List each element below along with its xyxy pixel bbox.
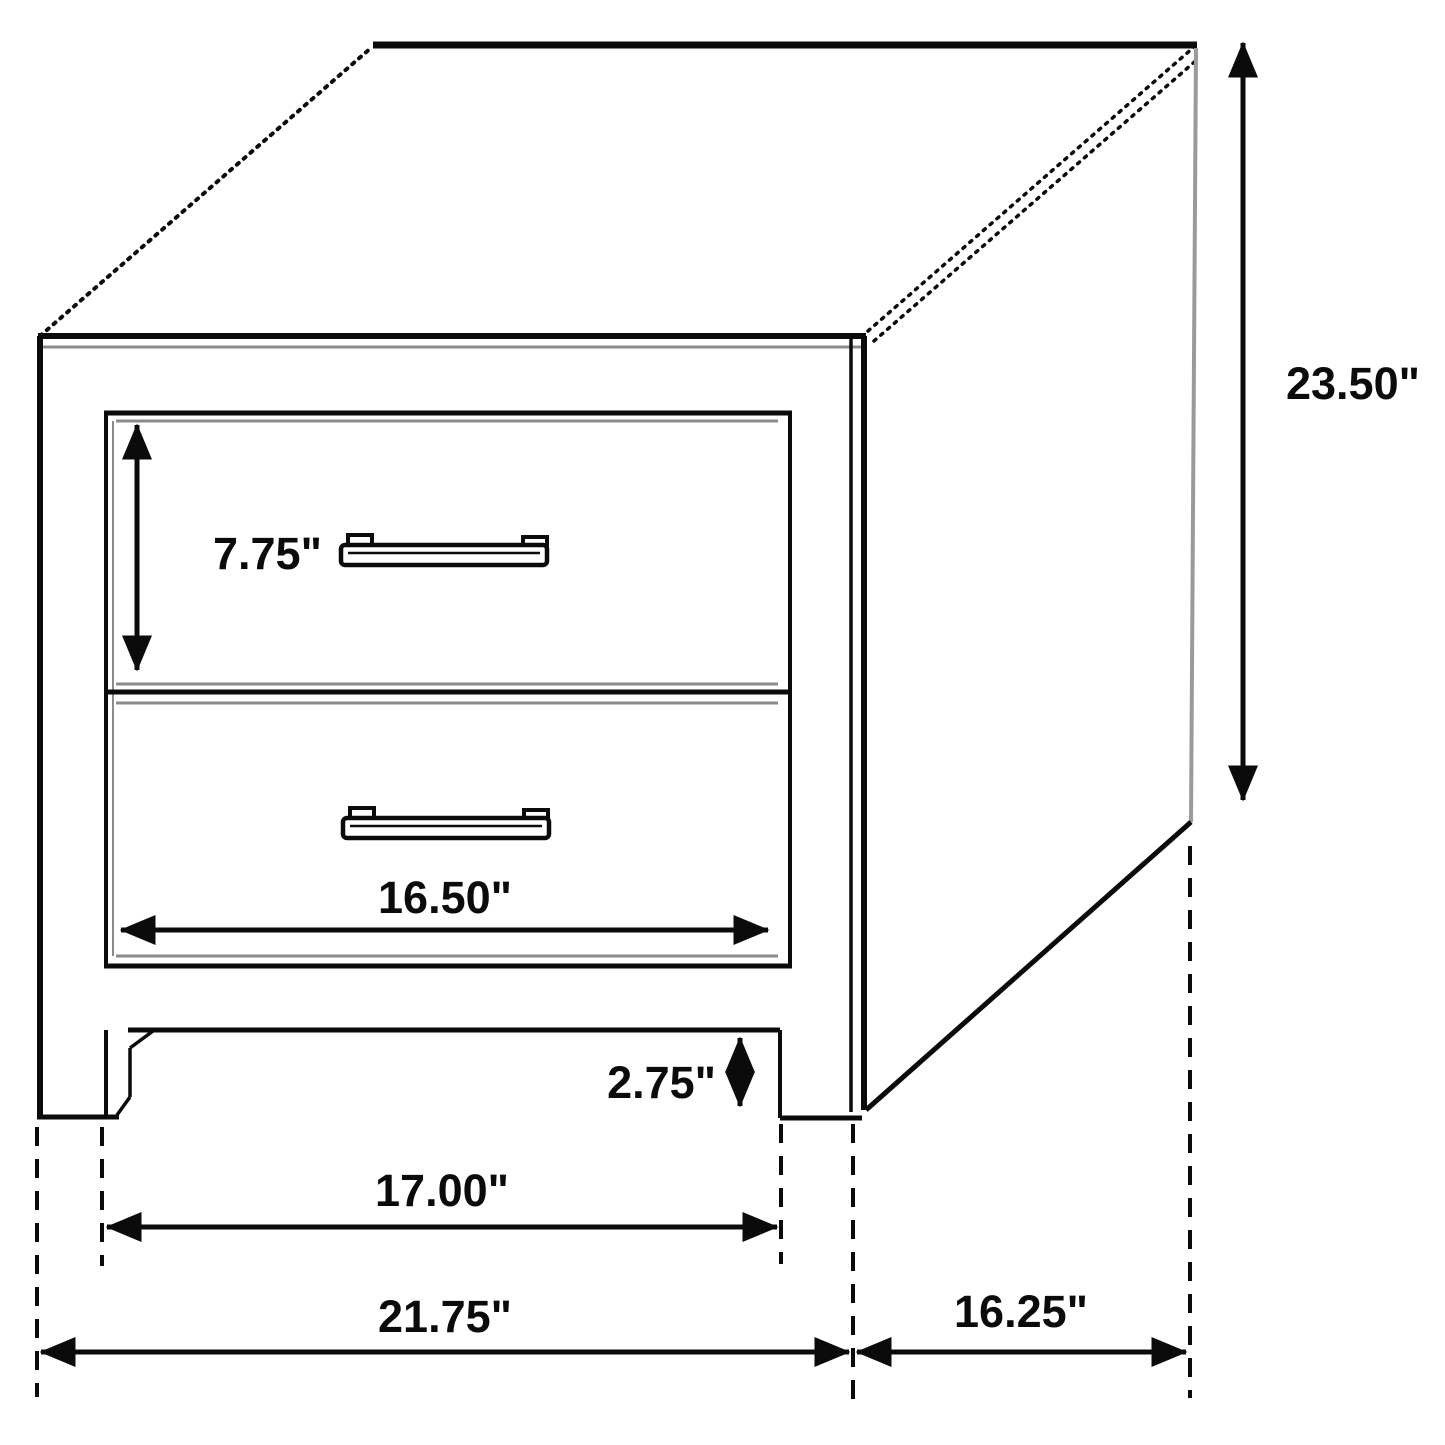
dim-clearance-label: 2.75" — [607, 1057, 716, 1108]
nightstand-dimension-diagram: 23.50" 7.75" 16.50" 2.75" 17.00" 21.75" … — [0, 0, 1445, 1445]
handle-bar — [343, 818, 549, 838]
handle-bar — [341, 545, 547, 565]
dim-height-label: 23.50" — [1286, 358, 1420, 409]
dim-depth-label: 16.25" — [954, 1286, 1088, 1337]
dim-overall-width-label: 21.75" — [378, 1291, 512, 1342]
dim-inner-width-label: 17.00" — [375, 1165, 509, 1216]
diagram-canvas: 23.50" 7.75" 16.50" 2.75" 17.00" 21.75" … — [0, 0, 1445, 1445]
dim-drawer-width-label: 16.50" — [378, 872, 512, 923]
dim-drawer-height-label: 7.75" — [213, 528, 322, 579]
